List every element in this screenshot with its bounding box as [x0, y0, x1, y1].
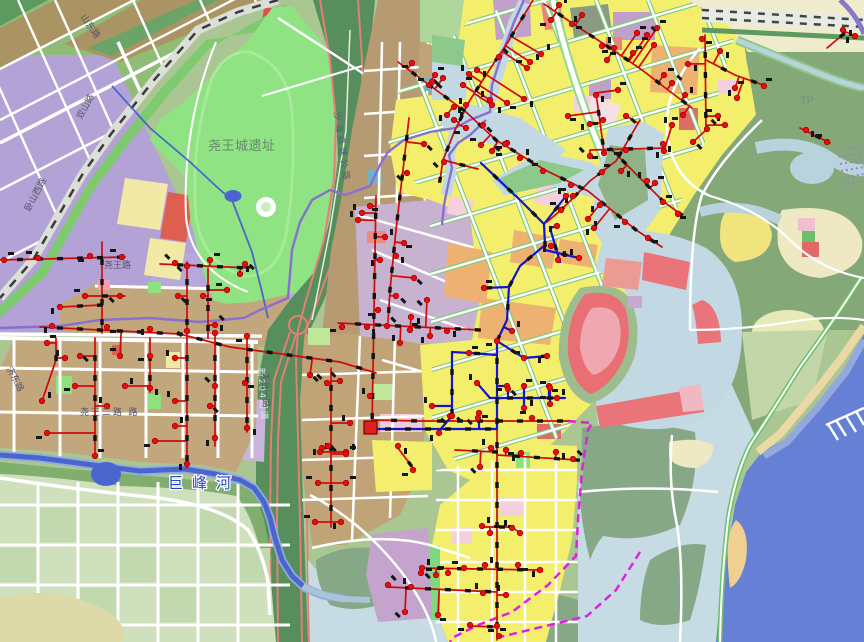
svg-text:巨峰河: 巨峰河: [168, 475, 240, 492]
svg-text:尧王二路 路: 尧王二路 路: [80, 406, 140, 417]
svg-text:天台一路: 天台一路: [260, 372, 272, 408]
svg-text:尧王路: 尧王路: [104, 259, 131, 270]
svg-text:TP: TP: [800, 95, 814, 107]
svg-text:尧王城遗址: 尧王城遗址: [208, 138, 276, 153]
